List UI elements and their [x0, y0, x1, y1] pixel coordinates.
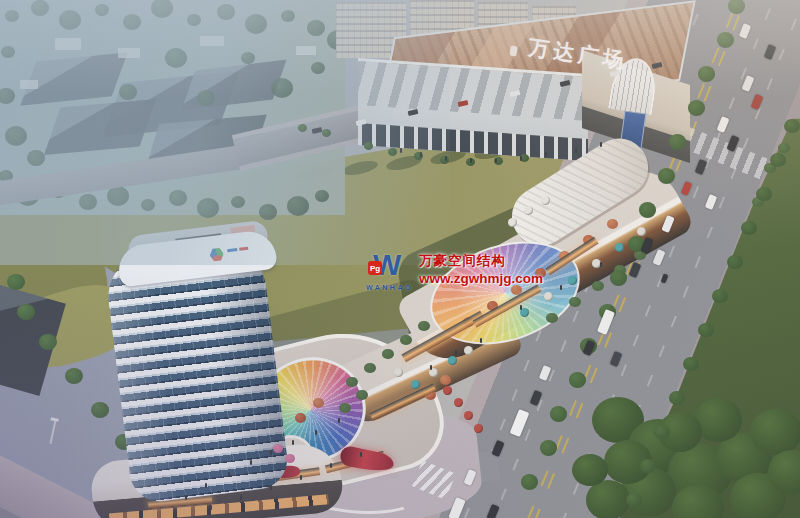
person [330, 463, 332, 468]
person [300, 475, 302, 480]
tree [5, 126, 27, 146]
umbrella [637, 227, 646, 236]
tree [39, 334, 57, 350]
tree [271, 78, 293, 98]
tree [322, 129, 331, 137]
tree [27, 150, 45, 166]
tower-brand-logo-icon [209, 247, 225, 263]
street-tree [770, 153, 786, 167]
street-tree [640, 459, 656, 473]
tree [7, 274, 25, 290]
person [520, 156, 522, 161]
tree [91, 402, 109, 418]
storefront-glow-strip [109, 494, 329, 518]
warehouse-shed [44, 99, 156, 155]
umbrella [394, 368, 403, 377]
person [270, 485, 272, 490]
tree [59, 10, 81, 30]
street-tree [521, 474, 538, 489]
tower-brand-logo-text [227, 248, 237, 252]
tree [31, 0, 49, 16]
tree [107, 186, 129, 206]
building-roof [118, 48, 140, 58]
watermark: W Pg WANHAO 万豪空间结构 www.zgwhmjg.com [366, 252, 543, 298]
building-roof [55, 38, 81, 50]
person [315, 430, 317, 435]
person [205, 483, 207, 488]
street-tree [639, 202, 656, 217]
person [445, 156, 447, 161]
tree [217, 4, 235, 20]
person [210, 505, 212, 510]
person [430, 365, 432, 370]
person [185, 495, 187, 500]
tree [169, 190, 187, 206]
terrace-tree [313, 398, 324, 408]
umbrella [464, 346, 473, 355]
street-lamp [50, 420, 57, 444]
umbrella [508, 218, 517, 227]
tree [197, 90, 215, 106]
warehouse-shed [20, 52, 127, 106]
tower-brand-logo-text [239, 247, 248, 251]
street-tree [756, 187, 772, 201]
tree [119, 84, 137, 100]
person [575, 148, 577, 153]
terrace-tree [440, 375, 451, 385]
big-tree [750, 409, 800, 456]
street-tree [727, 255, 743, 269]
watermark-logo-seal: Pg [368, 261, 382, 275]
tree [307, 20, 325, 36]
street-tree [626, 493, 642, 507]
tree [17, 304, 35, 320]
person [338, 418, 340, 423]
street-tree [698, 66, 715, 81]
tree [245, 14, 267, 34]
street-tree [610, 270, 627, 285]
person [228, 472, 230, 477]
person [545, 152, 547, 157]
building-roof [296, 46, 316, 55]
watermark-logo-name: WANHAO [366, 284, 413, 291]
person [600, 262, 602, 267]
street-tree [669, 391, 685, 405]
person [470, 158, 472, 163]
street-tree [540, 440, 557, 455]
building-roof [20, 80, 38, 89]
tree [79, 194, 97, 210]
person [600, 142, 602, 147]
watermark-company-name: 万豪空间结构 [419, 252, 543, 270]
person [360, 452, 362, 457]
street-tree [717, 32, 734, 47]
tree [123, 14, 141, 30]
person [240, 495, 242, 500]
big-tree [586, 480, 630, 518]
street-tree [669, 134, 686, 149]
tree [259, 204, 277, 220]
umbrella [524, 206, 533, 215]
aerial-rendering-scene: 万达广场 W Pg WAN [0, 0, 800, 518]
person [495, 158, 497, 163]
watermark-logo: W Pg WANHAO [366, 252, 412, 298]
umbrella [448, 356, 457, 365]
person [560, 285, 562, 290]
building-roof [200, 36, 224, 46]
umbrella [568, 276, 577, 285]
umbrella [464, 411, 473, 420]
mall-front-facade [358, 58, 588, 161]
street-tree [550, 406, 567, 421]
street-tree [658, 168, 675, 183]
terrace-flower-tree [285, 454, 295, 463]
street-tree [569, 372, 586, 387]
umbrella [454, 398, 463, 407]
tree [364, 142, 373, 150]
person [520, 305, 522, 310]
street-tree [728, 0, 745, 14]
umbrella [544, 292, 553, 301]
terrace-tree [295, 413, 306, 423]
tree [298, 124, 307, 132]
street-tree [688, 100, 705, 115]
umbrella [443, 386, 452, 395]
watermark-text: 万豪空间结构 www.zgwhmjg.com [419, 252, 543, 286]
tree [165, 48, 187, 68]
umbrella [615, 243, 624, 252]
street-tree [698, 323, 714, 337]
terrace-tree [607, 219, 618, 229]
big-tree [572, 454, 608, 486]
umbrella [541, 196, 550, 205]
umbrella [411, 380, 420, 389]
tree [440, 156, 449, 164]
terrace-flower-tree [273, 444, 283, 453]
tree [287, 196, 309, 216]
person [480, 338, 482, 343]
person [400, 148, 402, 153]
person [455, 350, 457, 355]
mall-roof-sign-mark [509, 46, 517, 57]
tree [197, 198, 219, 218]
person [270, 450, 272, 455]
umbrella [474, 424, 483, 433]
watermark-website: www.zgwhmjg.com [419, 271, 543, 286]
tree [65, 368, 83, 384]
person [292, 440, 294, 445]
tree [388, 148, 397, 156]
person [420, 152, 422, 157]
person [250, 460, 252, 465]
